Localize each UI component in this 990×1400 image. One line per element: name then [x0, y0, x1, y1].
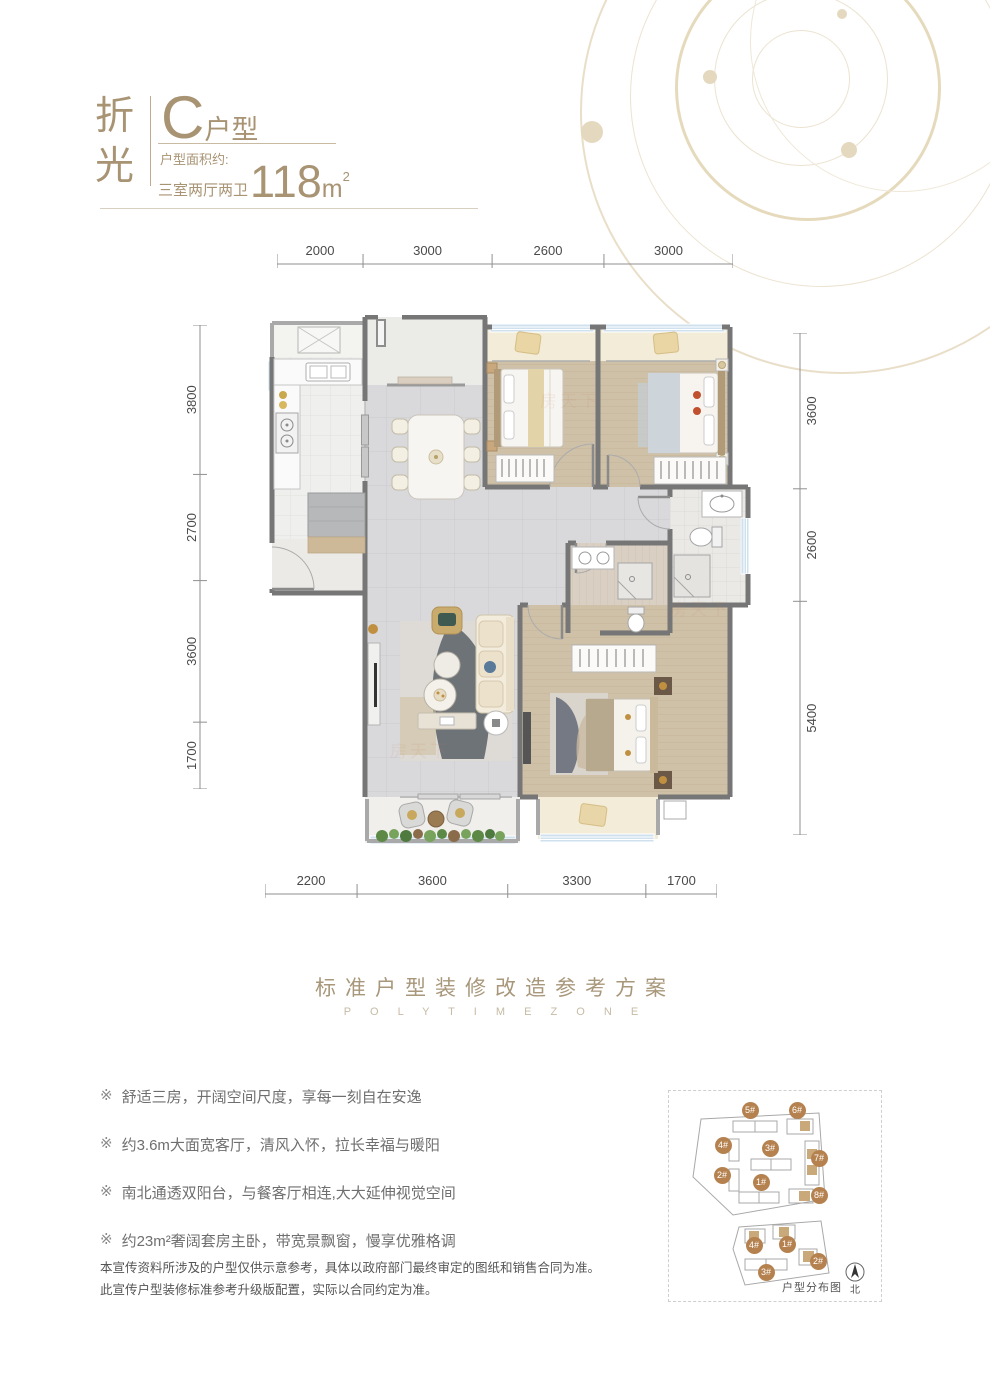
feature-marker: ※ [100, 1134, 113, 1155]
building-badge: 3# [762, 1140, 779, 1157]
svg-text:房天下: 房天下 [670, 600, 730, 619]
shoe-cabinet [398, 377, 452, 384]
svg-text:1700: 1700 [184, 741, 199, 770]
balcony-table [428, 811, 444, 827]
site-plan-map: 户型分布图 北 [669, 1091, 881, 1301]
section-title: 标准户型装修改造参考方案 [0, 972, 990, 1002]
feature-item: ※ 约23m²奢阔套房主卧，带宽景飘窗，慢享优雅格调 [100, 1230, 660, 1251]
kitchen-decor [279, 391, 287, 399]
double-sink [572, 547, 614, 569]
window [603, 324, 725, 332]
building-badge: 2# [714, 1167, 731, 1184]
svg-text:5400: 5400 [804, 704, 819, 733]
site-plan: 户型分布图 北 5#6#4#3#7#2#1#8#4#1#2#3# [668, 1090, 882, 1302]
tv-console [523, 712, 531, 764]
ring-dot [837, 9, 847, 19]
feature-item: ※ 约3.6m大面宽客厅，清风入怀，拉长幸福与暖阳 [100, 1134, 660, 1155]
feature-item: ※ 舒适三房，开阔空间尺度，享每一刻自在安逸 [100, 1086, 660, 1107]
toilet [712, 527, 722, 547]
feature-text: 南北通透双阳台，与餐客厅相连,大大延伸视觉空间 [122, 1182, 456, 1203]
area-row: 三室两厅两卫 118 m 2 [158, 164, 350, 201]
headboard [650, 697, 658, 773]
ring-dot [703, 70, 717, 84]
svg-text:房天下: 房天下 [390, 742, 450, 761]
compass-icon [846, 1263, 864, 1281]
disclaimer-line: 此宣传户型装修标准参考升级版配置，实际以合同约定为准。 [100, 1280, 640, 1302]
building-badge: 4# [715, 1137, 732, 1154]
feature-marker: ※ [100, 1230, 113, 1251]
ring-dot [841, 142, 857, 158]
svg-text:2600: 2600 [804, 531, 819, 560]
headboard [494, 369, 501, 447]
brochure-page: 折光 C 户型 户型面积约: 三室两厅两卫 118 m 2 2000300026… [0, 0, 990, 1400]
svg-text:2600: 2600 [534, 243, 563, 258]
floor-plan: 房天下 房天下 房天下 [250, 315, 770, 845]
ring-dot [581, 121, 603, 143]
dining-room [392, 415, 480, 499]
building-badge: 1# [779, 1236, 796, 1253]
area-unit: m [322, 178, 343, 201]
area-sup: 2 [343, 170, 350, 183]
bay-pillow [579, 803, 608, 826]
svg-text:房天下: 房天下 [540, 392, 600, 411]
dining-chair [464, 475, 480, 490]
svg-text:2200: 2200 [297, 873, 326, 888]
wardrobe [496, 455, 554, 482]
toilet [628, 607, 644, 614]
shower [618, 563, 652, 599]
wardrobe [654, 457, 726, 484]
dim-right: 360026005400 [792, 333, 822, 835]
tv [374, 663, 377, 707]
building-badge: 1# [753, 1174, 770, 1191]
feature-item: ※ 南北通透双阳台，与餐客厅相连,大大延伸视觉空间 [100, 1182, 660, 1203]
area-value: 118 [250, 164, 322, 201]
svg-text:1700: 1700 [667, 873, 696, 888]
unit-title: C 户型 [161, 88, 258, 148]
dining-chair [464, 419, 480, 434]
svg-text:3600: 3600 [418, 873, 447, 888]
entry-mat [308, 537, 365, 553]
bay-pillow [515, 331, 542, 354]
dim-bottom: 2200360033001700 [265, 872, 717, 902]
brand-logo: 折光 [95, 92, 139, 192]
north-label: 北 [850, 1284, 860, 1296]
svg-text:3000: 3000 [654, 243, 683, 258]
window [540, 834, 654, 842]
feature-text: 约23m²奢阔套房主卧，带宽景飘窗，慢享优雅格调 [122, 1230, 456, 1251]
headboard [718, 371, 725, 455]
site-plan-label: 户型分布图 [782, 1280, 842, 1294]
building-badge: 7# [811, 1150, 828, 1167]
layout-label: 三室两厅两卫 [158, 180, 248, 201]
coffee-table [434, 652, 460, 678]
building-badge: 2# [810, 1253, 827, 1270]
decor-plant [368, 624, 378, 634]
dining-chair [464, 447, 480, 462]
window [741, 518, 749, 574]
fridge-cabinet [308, 493, 365, 537]
svg-text:3300: 3300 [562, 873, 591, 888]
shower [674, 555, 710, 597]
building-badge: 4# [746, 1237, 763, 1254]
header-divider [150, 96, 151, 186]
window [490, 324, 594, 332]
dining-chair [392, 419, 408, 434]
feature-marker: ※ [100, 1182, 113, 1203]
building-badge: 3# [758, 1264, 775, 1281]
building-badge: 5# [742, 1102, 759, 1119]
building-badge: 8# [811, 1187, 828, 1204]
svg-text:3000: 3000 [413, 243, 442, 258]
svg-text:2000: 2000 [306, 243, 335, 258]
sofa-pillow [484, 661, 496, 673]
svg-text:2700: 2700 [184, 513, 199, 542]
unit-letter: C [161, 88, 204, 148]
disclaimer-line: 本宣传资料所涉及的户型仅供示意参考，具体以政府部门最终审定的图纸和销售合同为准。 [100, 1258, 640, 1280]
section-subtitle: P O L Y T I M E Z O N E [0, 1006, 990, 1018]
svg-text:3600: 3600 [804, 396, 819, 425]
feature-marker: ※ [100, 1086, 113, 1107]
feature-list: ※ 舒适三房，开阔空间尺度，享每一刻自在安逸 ※ 约3.6m大面宽客厅，清风入怀… [100, 1086, 660, 1278]
dining-chair [392, 475, 408, 490]
dim-top: 2000300026003000 [277, 242, 733, 272]
feature-text: 舒适三房，开阔空间尺度，享每一刻自在安逸 [122, 1086, 422, 1107]
bed-decor [693, 391, 701, 399]
bay-pillow [653, 332, 679, 354]
dim-left: 3800270036001700 [178, 325, 208, 789]
svg-text:3800: 3800 [184, 385, 199, 414]
header-rule-long [100, 208, 478, 209]
building-badge: 6# [789, 1102, 806, 1119]
dining-chair [392, 447, 408, 462]
feature-text: 约3.6m大面宽客厅，清风入怀，拉长幸福与暖阳 [122, 1134, 440, 1155]
disclaimer: 本宣传资料所涉及的户型仅供示意参考，具体以政府部门最终审定的图纸和销售合同为准。… [100, 1258, 640, 1302]
header-rule-small [158, 143, 336, 144]
window-seat [664, 801, 686, 819]
svg-text:3600: 3600 [184, 637, 199, 666]
